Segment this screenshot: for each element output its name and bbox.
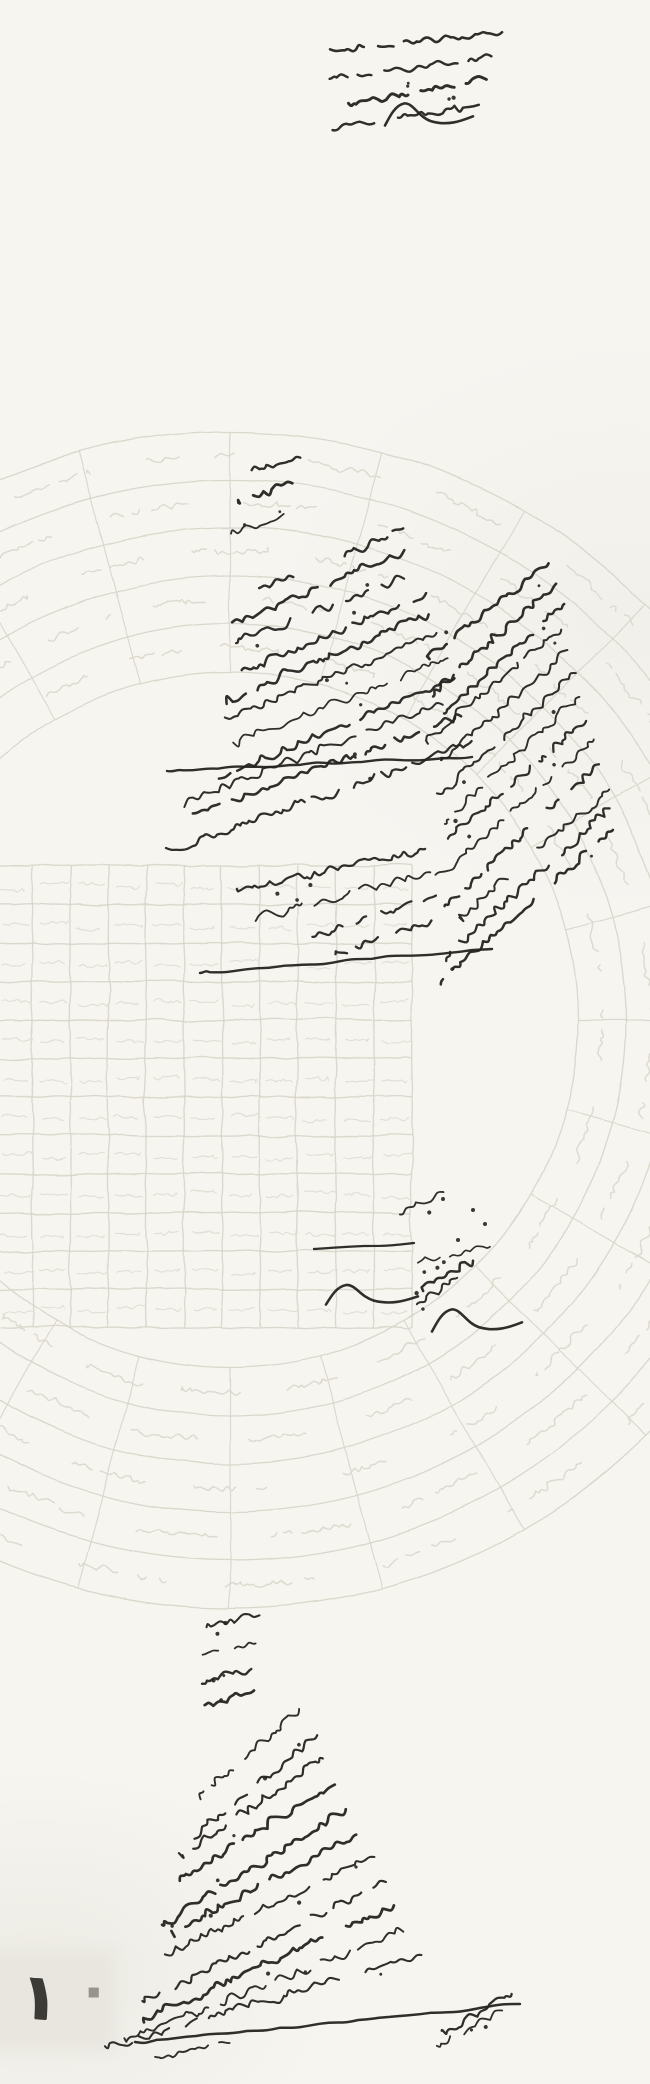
ink-text-row	[417, 1244, 492, 1269]
center-flourish-2	[432, 1309, 522, 1331]
ink-dot	[215, 1632, 220, 1637]
faint-ring-text	[109, 501, 190, 519]
faint-ring-text	[81, 555, 144, 576]
center-note-dots	[441, 1197, 487, 1242]
faint-grid-line	[0, 1057, 412, 1059]
center-note-word	[398, 1189, 450, 1226]
ink-text-row	[237, 845, 429, 903]
ink-stroke	[160, 1806, 349, 1929]
faint-grid-line	[0, 1096, 412, 1098]
faint-ring-text	[270, 1521, 351, 1538]
faint-ring-spoke	[320, 452, 382, 684]
faint-ring-text	[521, 1393, 588, 1449]
faint-ring-text	[637, 1053, 650, 1119]
ink-dot	[443, 630, 449, 636]
faint-grid-line	[0, 904, 412, 906]
ink-dot	[407, 82, 410, 85]
faint-ring-spoke	[476, 1266, 646, 1436]
faint-grid-line	[0, 1019, 412, 1022]
ink-stroke	[237, 480, 294, 505]
handwriting-ink-layer	[104, 29, 617, 2061]
ink-text-row	[442, 762, 601, 909]
faint-ring-text	[641, 943, 650, 1009]
faint-grid-line	[0, 942, 412, 944]
faint-ring-text	[486, 747, 529, 794]
ink-text-row	[253, 864, 432, 924]
faint-ring-text	[349, 1397, 413, 1426]
ink-dot	[471, 1208, 475, 1212]
faint-ring-spoke	[78, 1356, 140, 1588]
ink-text-row	[441, 713, 588, 840]
faint-ring-text	[598, 1010, 605, 1069]
ink-stroke	[348, 75, 487, 107]
faint-ring-text	[6, 1485, 84, 1520]
ink-stroke	[166, 737, 474, 857]
page-number-digit-one: ١	[18, 1965, 61, 2032]
ink-stroke	[178, 1755, 325, 1859]
faint-ring-text	[181, 1387, 240, 1395]
ink-dot	[435, 1265, 440, 1270]
faint-ring-text	[371, 1537, 457, 1572]
ink-text-row	[201, 1641, 256, 1657]
ink-text-row	[231, 546, 406, 629]
ink-text-row	[335, 917, 433, 959]
ink-dot	[406, 84, 410, 88]
ink-text-row	[205, 1611, 261, 1637]
center-flourish-1	[326, 1285, 418, 1305]
ink-dot	[467, 834, 472, 839]
ink-dot	[345, 681, 349, 685]
ink-stroke	[335, 917, 433, 959]
ink-stroke	[254, 868, 432, 924]
faint-ring-text	[524, 1197, 560, 1249]
faint-ring-text	[136, 1527, 217, 1540]
faint-grid-line	[0, 1250, 412, 1252]
ink-dot	[456, 1238, 460, 1242]
ink-dot	[275, 891, 280, 896]
faint-grid-cell-text	[1, 882, 409, 891]
ink-text-row	[330, 29, 502, 54]
page-number-digit-zero: ٠	[76, 1960, 111, 2018]
faint-grid-line	[0, 1211, 412, 1213]
faint-ring-text	[402, 1472, 478, 1510]
ink-dot	[352, 610, 357, 615]
center-note-cluster	[410, 1248, 475, 1312]
ink-text-row	[155, 2040, 230, 2061]
ink-stroke	[141, 1902, 397, 2025]
ink-dot	[295, 898, 299, 902]
ink-stroke	[321, 52, 491, 84]
center-note-fragment	[417, 1244, 492, 1269]
faint-ring-text	[46, 672, 88, 697]
ink-stroke	[201, 1666, 253, 1685]
right-paragraph-left-extension	[237, 845, 438, 958]
faint-ring-spoke	[566, 1110, 650, 1172]
ink-text-row	[232, 654, 452, 755]
ink-text-row	[441, 1991, 513, 2036]
ink-dot	[461, 779, 466, 784]
faint-ring-text	[371, 1335, 425, 1366]
ink-dot	[414, 1290, 420, 1296]
ink-dot	[483, 2024, 488, 2029]
faint-ring-text	[131, 1426, 197, 1443]
manuscript-page: ١ ٠	[0, 0, 650, 2084]
ink-text-row	[178, 1755, 325, 1859]
ink-text-row	[415, 1248, 475, 1292]
faint-ring-spoke	[78, 452, 140, 684]
faint-ring-text	[2, 1314, 54, 1350]
ink-stroke	[417, 1244, 491, 1264]
bottom-main-paragraph	[104, 1706, 424, 2056]
bottom-final-tail	[155, 2040, 230, 2061]
faint-ring-text	[146, 452, 235, 464]
faint-grid-cell-text	[1, 1191, 411, 1199]
ink-stroke	[442, 762, 601, 909]
top-right-annotation	[321, 29, 502, 131]
ink-dot	[447, 97, 451, 101]
ink-dot	[255, 643, 260, 648]
faint-ring-text	[14, 470, 89, 500]
ink-dot	[452, 818, 458, 824]
ink-dot	[451, 95, 456, 100]
ink-dot	[232, 1833, 236, 1837]
ink-stroke	[332, 102, 480, 131]
faint-ring-text	[0, 1505, 24, 1548]
faint-ring-text	[625, 1355, 650, 1426]
faint-ring-text	[220, 644, 279, 652]
ink-stroke	[141, 1878, 388, 2005]
ink-text-row	[166, 737, 474, 857]
faint-grid-cell-text	[2, 1306, 407, 1315]
ink-text-row	[321, 52, 491, 84]
ink-dot	[365, 583, 370, 588]
faint-grid-cell-text	[4, 1269, 411, 1275]
faint-ring-text	[507, 1461, 584, 1516]
ink-stroke	[231, 546, 406, 629]
ink-stroke	[230, 513, 285, 537]
ink-dot	[379, 1972, 383, 1976]
ink-stroke	[251, 454, 301, 473]
ink-text-row	[189, 1731, 320, 1840]
faint-ring-text	[225, 1577, 314, 1589]
bottom-right-cluster	[435, 1991, 513, 2054]
ink-dot	[442, 1260, 446, 1264]
ink-dot	[324, 678, 329, 683]
ink-dot	[278, 510, 282, 514]
faint-ring-text	[263, 597, 329, 613]
ink-dot	[552, 762, 557, 767]
ink-stroke	[155, 2040, 230, 2061]
ink-text-row	[441, 602, 566, 715]
ink-stroke	[436, 670, 579, 799]
ink-dot	[553, 641, 557, 645]
faint-grid-cell-text	[4, 1036, 412, 1045]
faint-ring-text	[0, 723, 4, 759]
ink-stroke	[123, 1926, 405, 2044]
ink-text-row	[141, 1878, 388, 2005]
ink-text-row	[251, 454, 301, 473]
faint-grid-line	[0, 1134, 412, 1136]
faint-ring-text	[565, 563, 636, 625]
faint-ring-text	[79, 1561, 167, 1584]
faint-ring-text	[455, 1275, 502, 1318]
faint-ring-spoke	[566, 868, 650, 930]
ink-dot	[296, 1900, 302, 1906]
right-diagonal-paragraph	[417, 555, 618, 989]
ink-stroke	[441, 1991, 513, 2036]
ink-text-row	[141, 1902, 397, 2025]
faint-ring-text	[622, 1290, 650, 1358]
ink-dot	[441, 1197, 445, 1201]
ink-text-row	[204, 1688, 255, 1709]
ink-dot	[296, 1742, 301, 1747]
faint-ring-text	[608, 838, 636, 901]
faint-ring-text	[130, 648, 182, 664]
bottom-heading-column	[201, 1611, 262, 1709]
faint-ring-text	[28, 1388, 90, 1419]
faint-ring-text	[48, 613, 112, 642]
ink-text-row	[330, 92, 479, 132]
middle-heading-column	[229, 454, 301, 536]
ink-text-row	[121, 1920, 405, 2044]
middle-underline	[167, 757, 472, 771]
ink-text-row	[157, 1801, 349, 1929]
faint-grid-line	[0, 1173, 412, 1175]
ink-stroke	[330, 29, 502, 54]
faint-ring-text	[241, 1432, 307, 1443]
faint-ring-text	[549, 744, 592, 800]
ink-dot	[426, 1210, 432, 1216]
ink-stroke	[204, 1688, 255, 1709]
faint-ring-text	[315, 1460, 387, 1483]
ink-dot	[215, 1878, 220, 1883]
ink-stroke	[163, 1854, 376, 1958]
ink-text-row	[237, 480, 294, 505]
ink-stroke	[441, 602, 566, 715]
faint-ring-text	[618, 760, 650, 820]
ink-dot	[541, 626, 546, 631]
ink-text-row	[398, 1189, 450, 1226]
faint-grid-cell-text	[0, 1231, 410, 1238]
faint-grid-cell-text	[3, 999, 408, 1008]
faint-grid-line	[0, 1288, 412, 1290]
ink-stroke	[201, 1641, 256, 1657]
ink-dot	[483, 1222, 487, 1226]
ink-text-row	[229, 509, 285, 536]
ink-text-row	[302, 894, 438, 943]
faint-grid-cell-text	[2, 1153, 412, 1161]
ink-dot	[359, 703, 363, 707]
faint-ring-text	[243, 500, 324, 514]
faint-ring-text	[599, 1160, 630, 1222]
faint-grid-cell-text	[4, 1076, 408, 1084]
ink-text-row	[169, 1827, 359, 1937]
ink-stroke	[205, 1611, 260, 1627]
ink-text-row	[201, 1666, 253, 1685]
ink-dot	[537, 584, 541, 588]
faint-grid-line	[0, 981, 412, 983]
faint-ring-text	[437, 490, 519, 534]
ink-dot	[265, 1971, 270, 1976]
faint-ring-spoke	[404, 1321, 524, 1529]
ink-stroke	[302, 894, 438, 943]
faint-grid-cell-text	[1, 1113, 409, 1123]
faint-ring-text	[448, 1344, 497, 1381]
faint-grid-line	[183, 866, 185, 1328]
faint-grid-line	[0, 1327, 412, 1330]
faint-grid-cell-text	[3, 921, 406, 930]
ink-text-row	[437, 827, 617, 989]
ink-stroke	[104, 1950, 423, 2053]
manuscript-scan-svg	[0, 0, 650, 2084]
faint-ring-text	[0, 659, 11, 695]
center-note-dash	[314, 1243, 414, 1249]
ink-text-row	[410, 1267, 461, 1312]
faint-ring-text	[153, 596, 219, 608]
ink-dot	[422, 1270, 427, 1275]
faint-ring-text	[308, 458, 382, 479]
